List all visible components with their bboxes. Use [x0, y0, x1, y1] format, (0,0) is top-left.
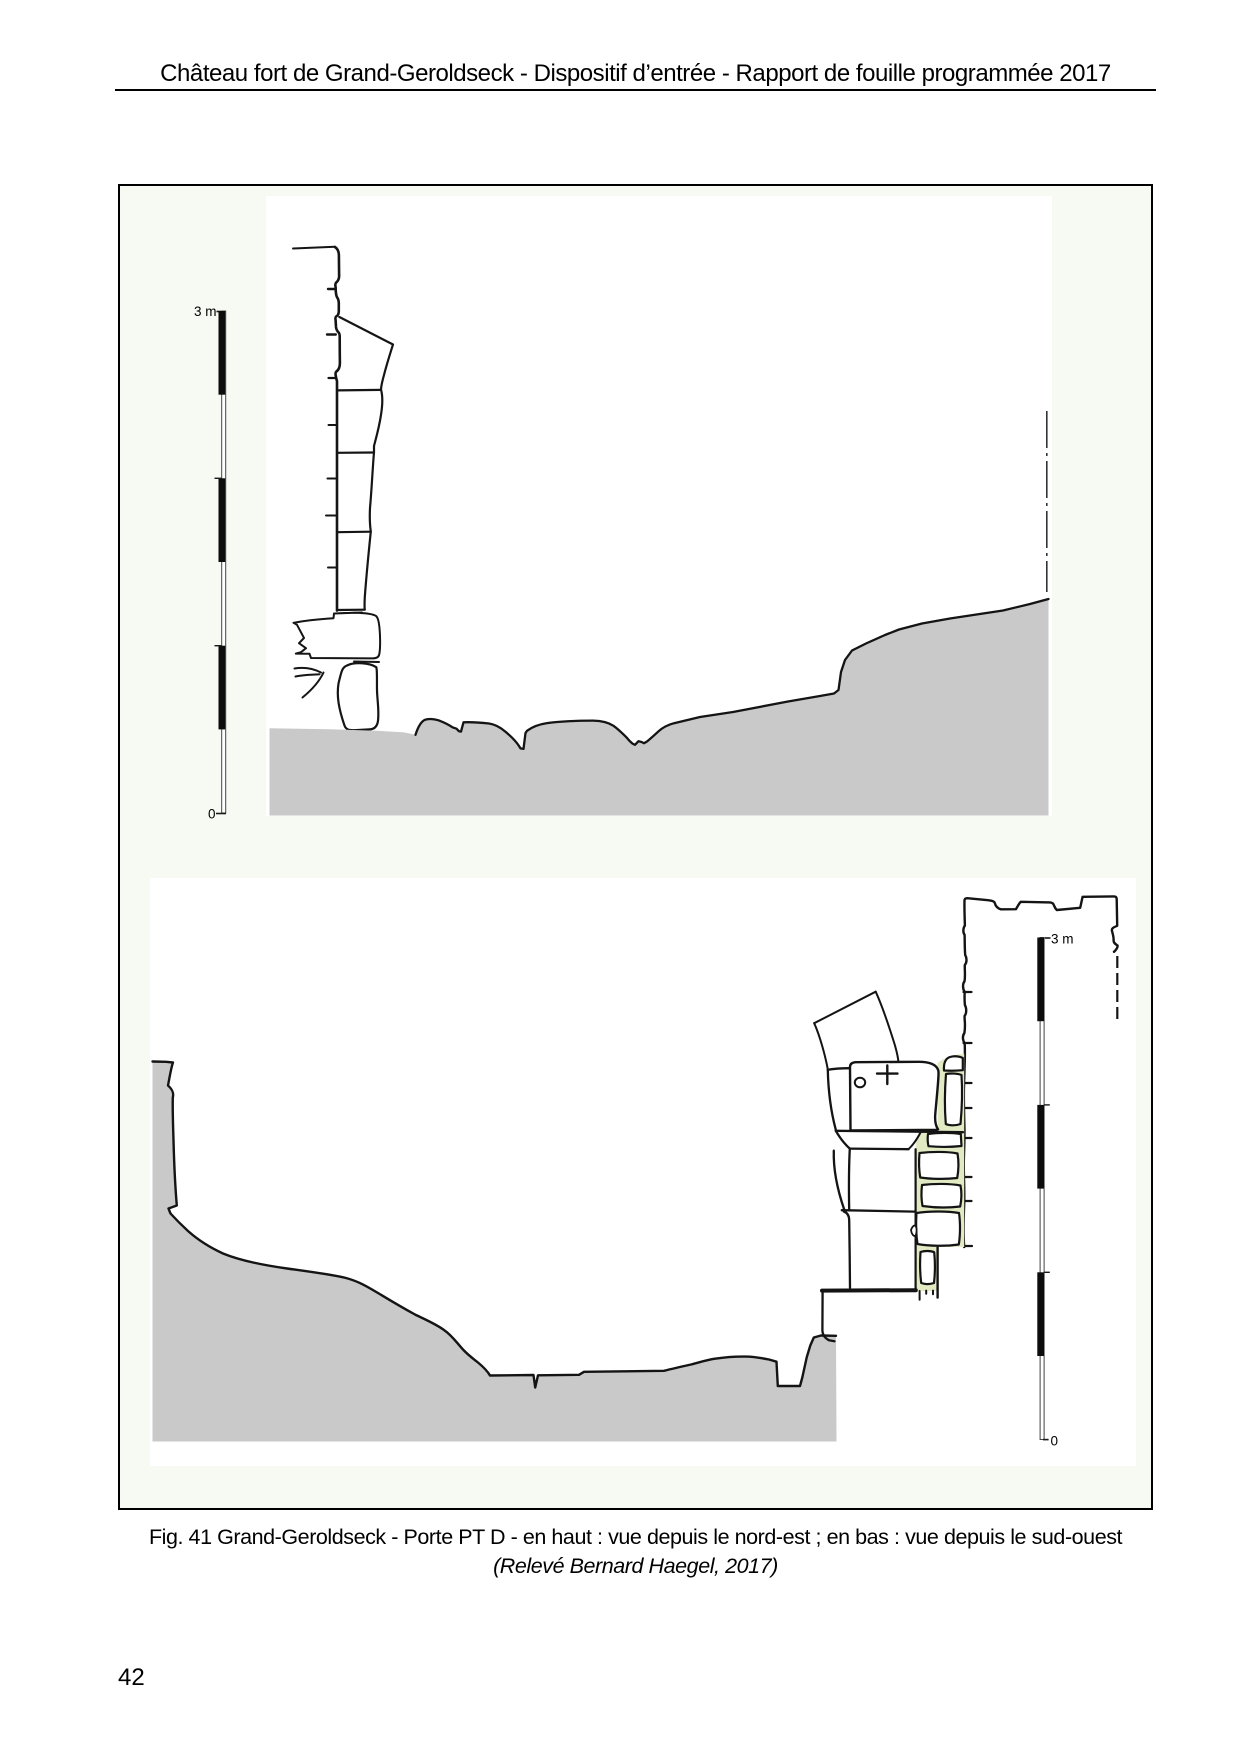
svg-text:3 m: 3 m: [1051, 932, 1074, 947]
svg-text:3 m: 3 m: [194, 304, 217, 319]
svg-text:0: 0: [1051, 1434, 1059, 1449]
svg-text:0: 0: [208, 807, 216, 822]
